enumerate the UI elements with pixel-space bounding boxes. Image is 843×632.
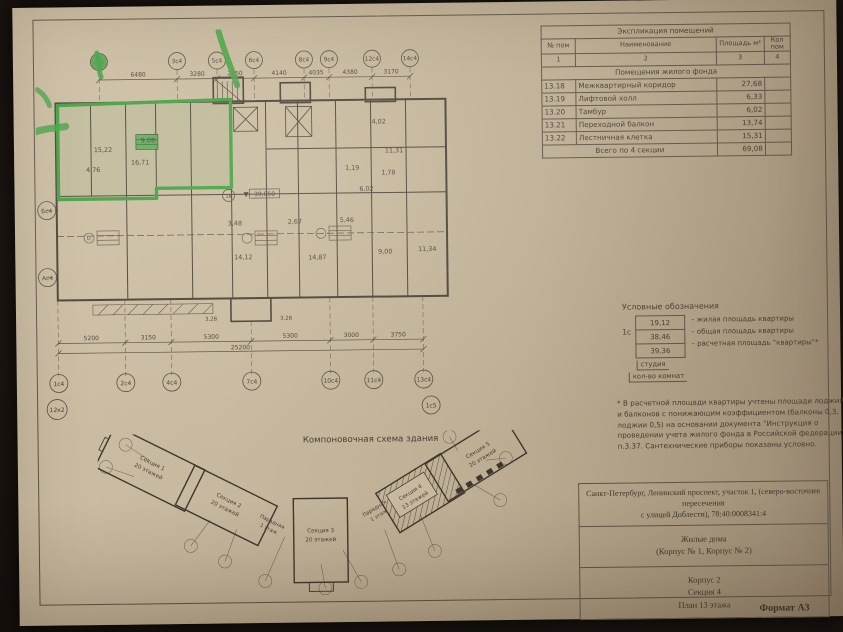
room-number: 13.19 xyxy=(542,93,576,106)
room-area-value: 15,31 xyxy=(717,129,765,143)
legend: Условные обозначения 1с 19,12 38,46 39,3… xyxy=(622,300,843,383)
scheme-section-3: Секция 3 20 этажей xyxy=(293,498,348,592)
room-number: 13.18 xyxy=(542,80,576,93)
total-count xyxy=(765,142,791,155)
room-area: 16,71 xyxy=(131,158,149,166)
highlighted-apartment xyxy=(57,99,231,199)
room-area: 3,48 xyxy=(228,219,242,227)
room-count xyxy=(765,77,791,90)
axis-bubble-label: 3с4 xyxy=(172,59,183,65)
title-block-address-line2: с улицей Доблести), 78:40:0008341:4 xyxy=(583,508,823,522)
axis-bubble-label: 1с5 xyxy=(426,402,437,409)
axis-bubble-label: 9с4 xyxy=(324,57,335,63)
dim-label: 3000 xyxy=(344,332,360,339)
stamp-value: 19,12 xyxy=(635,315,684,330)
room-count xyxy=(765,116,791,129)
building-scheme: Секция 1 20 этажей Секция 2 20 этажей Се… xyxy=(97,430,529,601)
stamp-value: 38,46 xyxy=(636,329,685,344)
room-area-value: 6,33 xyxy=(717,90,765,104)
dim-label: 3150 xyxy=(141,334,157,341)
room-number: 13.20 xyxy=(542,106,576,119)
axis-bubble-label: 12к2 xyxy=(50,407,65,414)
format-label: Формат А3 xyxy=(759,602,809,614)
dim-label: 3280 xyxy=(189,71,205,78)
room-area: 6,02 xyxy=(359,185,373,193)
room-area: 15,22 xyxy=(94,146,112,154)
scheme-entrance-left: Парадная 1 этаж xyxy=(255,514,285,538)
dim-label: 3750 xyxy=(391,331,407,338)
col-header-num: № пом xyxy=(541,39,575,54)
room-area: 4,02 xyxy=(372,118,386,126)
title-block: Санкт-Петербург, Ленинский проспект, уча… xyxy=(578,480,830,620)
legend-caption-type: студия xyxy=(637,360,669,370)
axis-bubble-label: Ас4 xyxy=(42,275,53,282)
stamp-desc: – расчетная площадь "квартиры"* xyxy=(685,337,818,351)
dim-label: 4140 xyxy=(271,70,287,77)
room-area: 9,00 xyxy=(378,247,392,255)
small-dim: 3,28 xyxy=(205,317,218,323)
footnote: * В расчетной площади квартиры учтены пл… xyxy=(617,396,843,453)
section-floors: 20 этажей xyxy=(305,536,336,543)
axis-bubble-label: 2с4 xyxy=(120,380,131,387)
axis-bubble-label: 4с4 xyxy=(166,380,177,387)
scheme-section-2: Секция 2 20 этажей xyxy=(175,465,277,545)
col-header-count: Кол пом xyxy=(764,36,790,51)
room-number: 13.22 xyxy=(542,132,576,145)
legend-stamp-table: 19,12 38,46 39,36 xyxy=(635,315,686,359)
room-count xyxy=(765,90,791,103)
axis-bubble-label: 14с4 xyxy=(403,56,418,62)
col-number: 4 xyxy=(764,51,790,64)
room-count xyxy=(765,103,791,116)
room-area: 9,08 xyxy=(141,136,155,144)
title-block-address-line1: Санкт-Петербург, Ленинский проспект, уча… xyxy=(583,486,823,511)
bottom-axes: 1с4 2с4 4с4 7с4 10с4 11с4 13с4 12к2 1с5 … xyxy=(41,203,437,414)
axis-bubble-label: 6с4 xyxy=(249,58,260,64)
room-area: 14,87 xyxy=(308,253,326,261)
dim-label: 4380 xyxy=(342,69,358,76)
room-area: 2,67 xyxy=(288,218,302,226)
dim-label: 4035 xyxy=(308,69,324,76)
room-area: 5,46 xyxy=(340,216,354,224)
legend-title: Условные обозначения xyxy=(622,300,843,312)
room-area-value: 13,74 xyxy=(717,116,765,130)
dim-label: 6480 xyxy=(130,71,146,78)
dim-label: 5300 xyxy=(204,334,220,341)
room-area-value: 27,68 xyxy=(716,77,764,91)
stamp-value: 39,36 xyxy=(636,343,685,358)
room-area: 11,31 xyxy=(385,146,403,154)
room-area-value: 6,02 xyxy=(717,103,765,117)
unit-type-label: 1с xyxy=(86,236,92,242)
room-area: 14,12 xyxy=(234,253,252,261)
room-area: 4,76 xyxy=(86,166,100,174)
total-label: Всего по 4 секции xyxy=(542,143,717,158)
elevation-value: 39,050 xyxy=(254,191,275,198)
unit-stamps xyxy=(84,226,351,247)
dim-label: 5200 xyxy=(84,335,100,342)
explication-table: Экспликация помещений № пом Наименование… xyxy=(541,23,793,159)
scheme-section-4: Секция 4 13 этажей xyxy=(376,454,465,533)
legend-caption-rooms: кол-во комнат xyxy=(629,372,687,383)
axis-bubble-label: 10с4 xyxy=(323,378,338,385)
col-number: 1 xyxy=(541,54,575,67)
axis-bubble-label: 5с4 xyxy=(212,58,223,64)
scheme-section-1: Секция 1 20 этажей xyxy=(97,430,204,511)
axis-bubble-label: 13с4 xyxy=(416,376,431,383)
axis-bubble-label: 8с4 xyxy=(299,57,310,63)
room-number: 13.21 xyxy=(542,119,576,132)
axis-bubble-label: 7с4 xyxy=(246,379,257,386)
col-header-area: Площадь м² xyxy=(716,36,764,51)
total-area-value: 69,08 xyxy=(717,142,765,156)
axis-bubble-label: 1с4 xyxy=(53,381,64,388)
table-row-total: Всего по 4 секции 69,08 xyxy=(542,142,791,158)
room-area: 1,78 xyxy=(381,168,395,176)
axis-bubble-label: 12с4 xyxy=(365,57,380,63)
col-number: 3 xyxy=(716,51,764,65)
axis-bubble-label: Бс4 xyxy=(41,208,52,215)
floor-plan: 6480 3280 2850 4140 4035 4380 3170 2с4 3… xyxy=(35,25,585,432)
section-name: Секция 3 xyxy=(307,528,334,534)
axis-bubble-label: 11с4 xyxy=(366,377,381,384)
title-block-project-line2: (Корпус № 1, Корпус № 2) xyxy=(584,544,824,559)
dim-total-label: 25200 xyxy=(231,344,250,351)
col-header-name: Наименование xyxy=(575,37,716,54)
small-dim: 3,28 xyxy=(280,316,293,322)
room-count xyxy=(765,129,791,142)
room-area: 11,34 xyxy=(418,245,436,253)
drawing-sheet-photo: 6480 3280 2850 4140 4035 4380 3170 2с4 3… xyxy=(12,0,843,626)
dim-label: 5300 xyxy=(283,333,299,340)
level-mark-label: 1в xyxy=(225,194,231,200)
room-area: 1,19 xyxy=(345,164,359,172)
legend-stamp-type: 1с xyxy=(622,328,631,337)
dim-label: 3170 xyxy=(383,68,399,75)
